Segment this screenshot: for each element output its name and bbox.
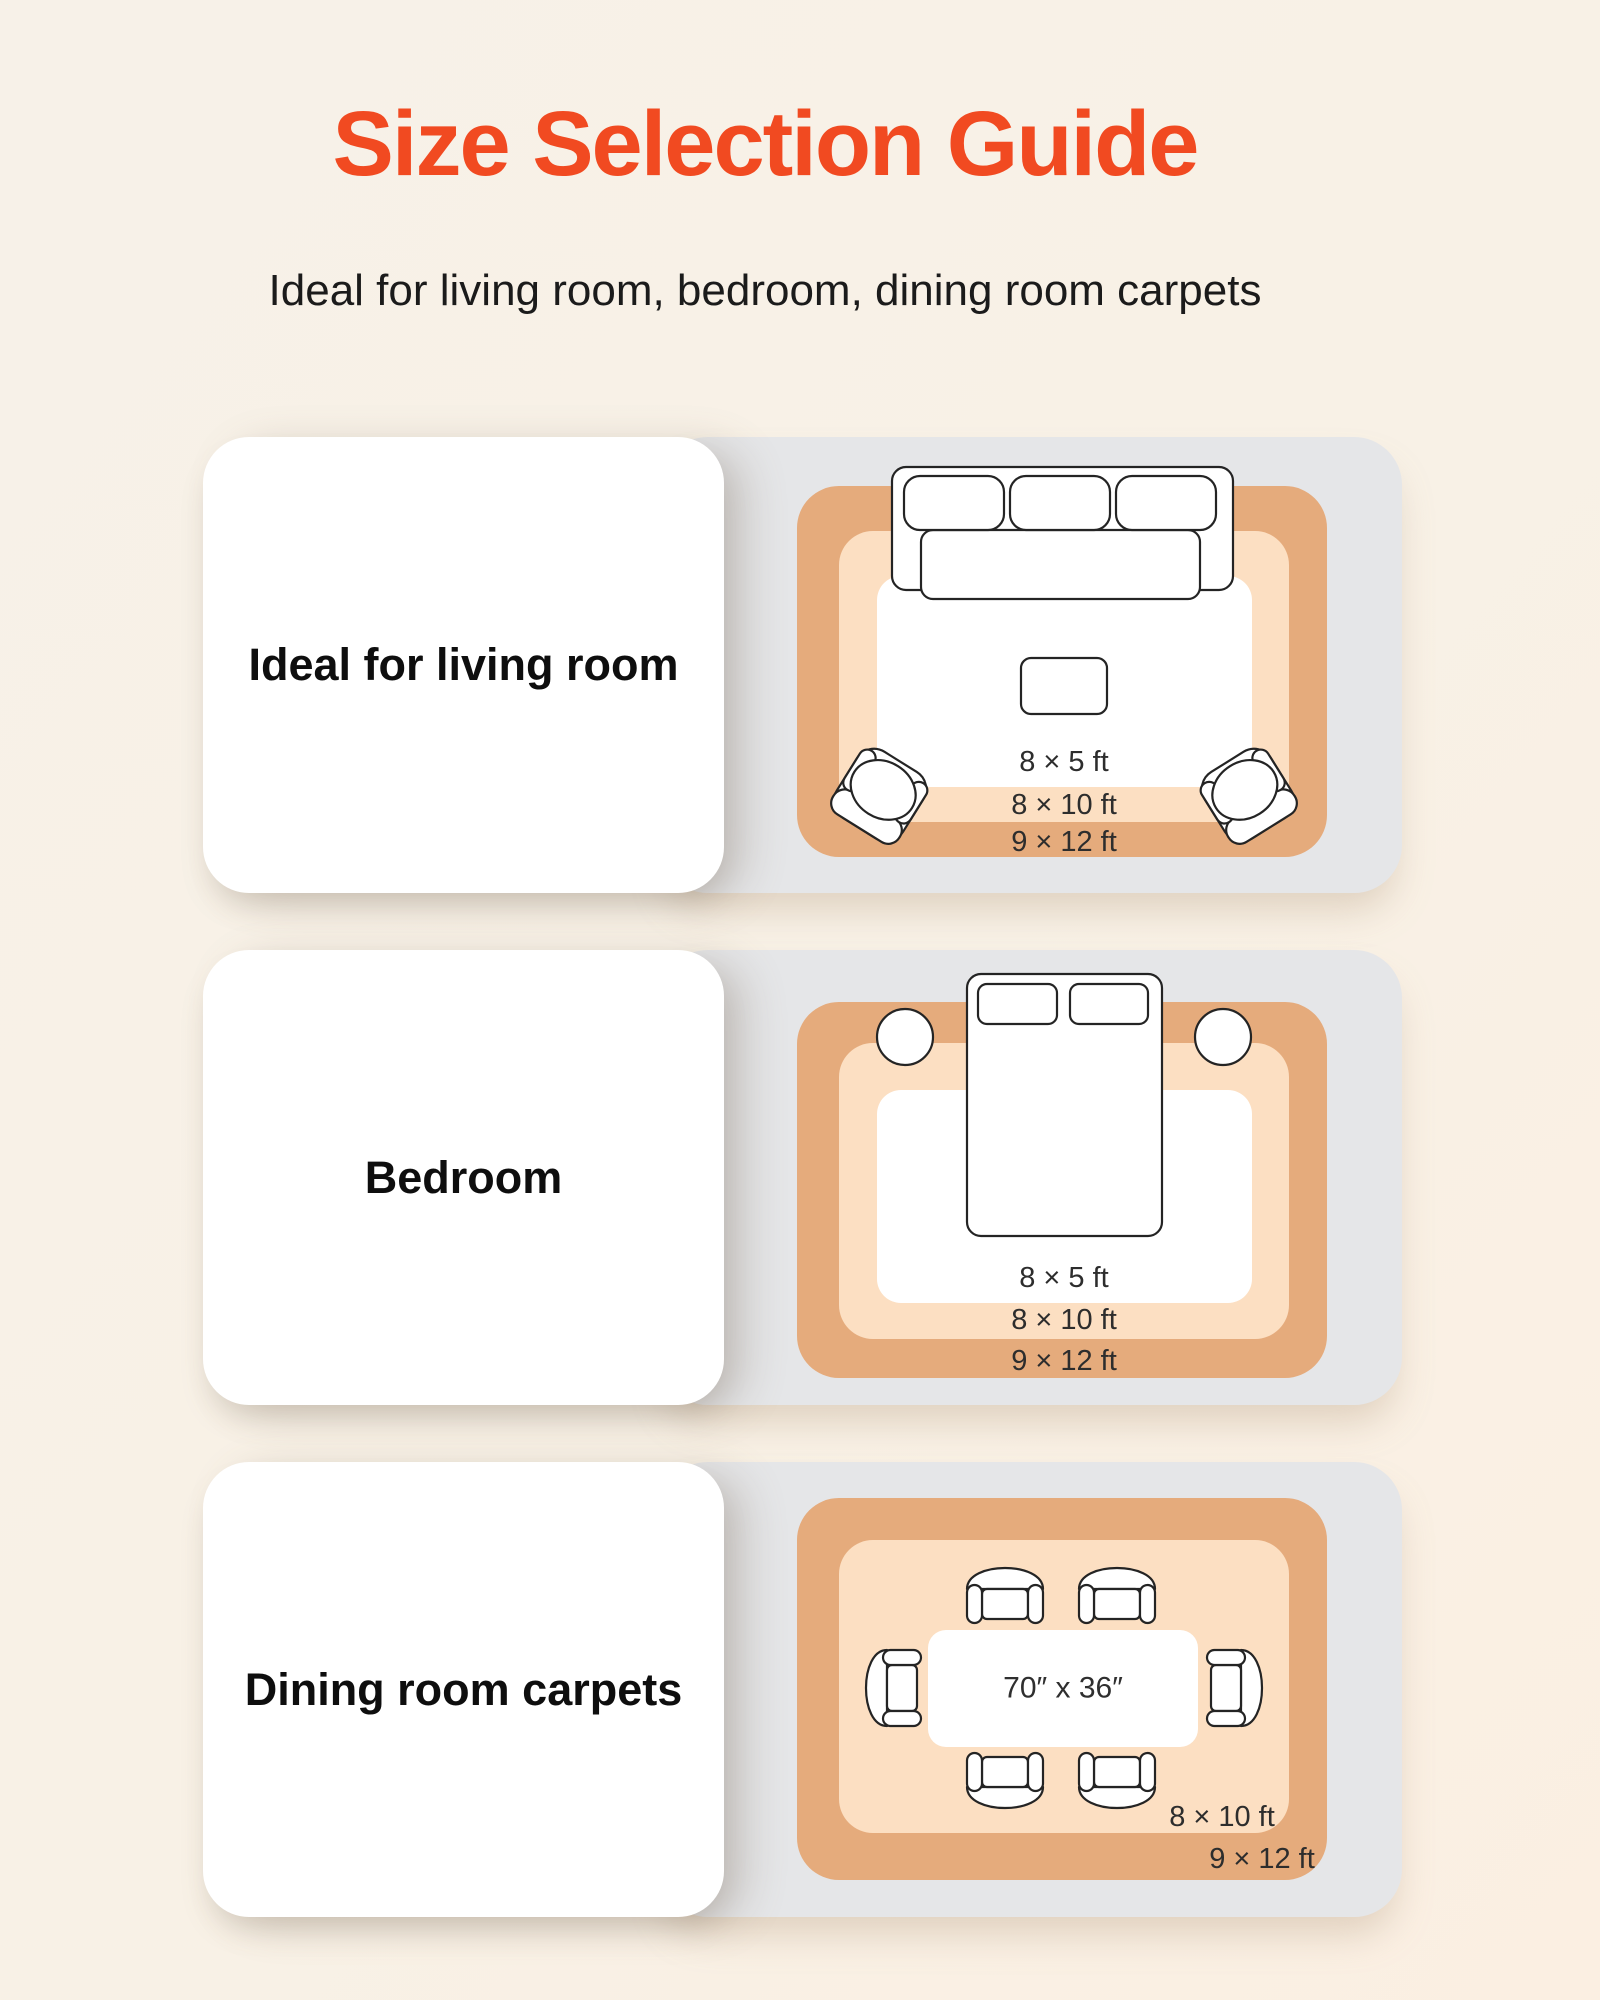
page-subtitle: Ideal for living room, bedroom, dining r… (0, 266, 1530, 316)
bedroom-illustration: 8 × 5 ft 8 × 10 ft 9 × 12 ft (660, 950, 1402, 1405)
page-title: Size Selection Guide (0, 92, 1530, 197)
dining-chair-icon (1079, 1568, 1155, 1623)
dining-room-card: Dining room carpets (203, 1462, 724, 1917)
table-size-label: 70″ x 36″ (1003, 1672, 1123, 1705)
size-label-8x10: 8 × 10 ft (1011, 1304, 1117, 1336)
living-room-card: Ideal for living room (203, 437, 724, 893)
size-guide-infographic: { "header": { "title": "Size Selection G… (0, 0, 1600, 2000)
dining-chair-icon (1079, 1753, 1155, 1808)
bedroom-row: 8 × 5 ft 8 × 10 ft 9 × 12 ft Bedroom (0, 950, 1600, 1405)
pillow-icon (1070, 984, 1148, 1024)
sofa-icon (892, 467, 1233, 599)
size-label-9x12: 9 × 12 ft (1011, 826, 1117, 858)
card-label: Dining room carpets (245, 1664, 683, 1716)
pillow-icon (978, 984, 1057, 1024)
dining-chair-icon (1207, 1650, 1262, 1726)
bedroom-panel: 8 × 5 ft 8 × 10 ft 9 × 12 ft (660, 950, 1402, 1405)
dining-room-illustration: 70″ x 36″ 8 × 10 ft 9 × 12 ft (660, 1462, 1402, 1917)
living-room-panel: 8 × 5 ft 8 × 10 ft 9 × 12 ft (660, 437, 1402, 893)
dining-chair-icon (967, 1568, 1043, 1623)
dining-room-panel: 70″ x 36″ 8 × 10 ft 9 × 12 ft (660, 1462, 1402, 1917)
dining-room-row: 70″ x 36″ 8 × 10 ft 9 × 12 ft Dining roo… (0, 1462, 1600, 1917)
living-room-illustration: 8 × 5 ft 8 × 10 ft 9 × 12 ft (660, 437, 1402, 893)
card-label: Ideal for living room (248, 639, 678, 691)
bed-icon (967, 974, 1162, 1236)
nightstand-icon (877, 1009, 933, 1065)
size-label-8x10: 8 × 10 ft (1169, 1801, 1275, 1833)
living-room-row: 8 × 5 ft 8 × 10 ft 9 × 12 ft Ideal for l… (0, 437, 1600, 893)
card-label: Bedroom (365, 1152, 563, 1204)
size-label-9x12: 9 × 12 ft (1209, 1843, 1315, 1875)
coffee-table-icon (1021, 658, 1107, 714)
nightstand-icon (1195, 1009, 1251, 1065)
size-label-9x12: 9 × 12 ft (1011, 1345, 1117, 1377)
size-label-8x5: 8 × 5 ft (1019, 746, 1108, 778)
bedroom-card: Bedroom (203, 950, 724, 1405)
dining-chair-icon (967, 1753, 1043, 1808)
size-label-8x10: 8 × 10 ft (1011, 789, 1117, 821)
dining-chair-icon (866, 1650, 921, 1726)
size-label-8x5: 8 × 5 ft (1019, 1262, 1108, 1294)
